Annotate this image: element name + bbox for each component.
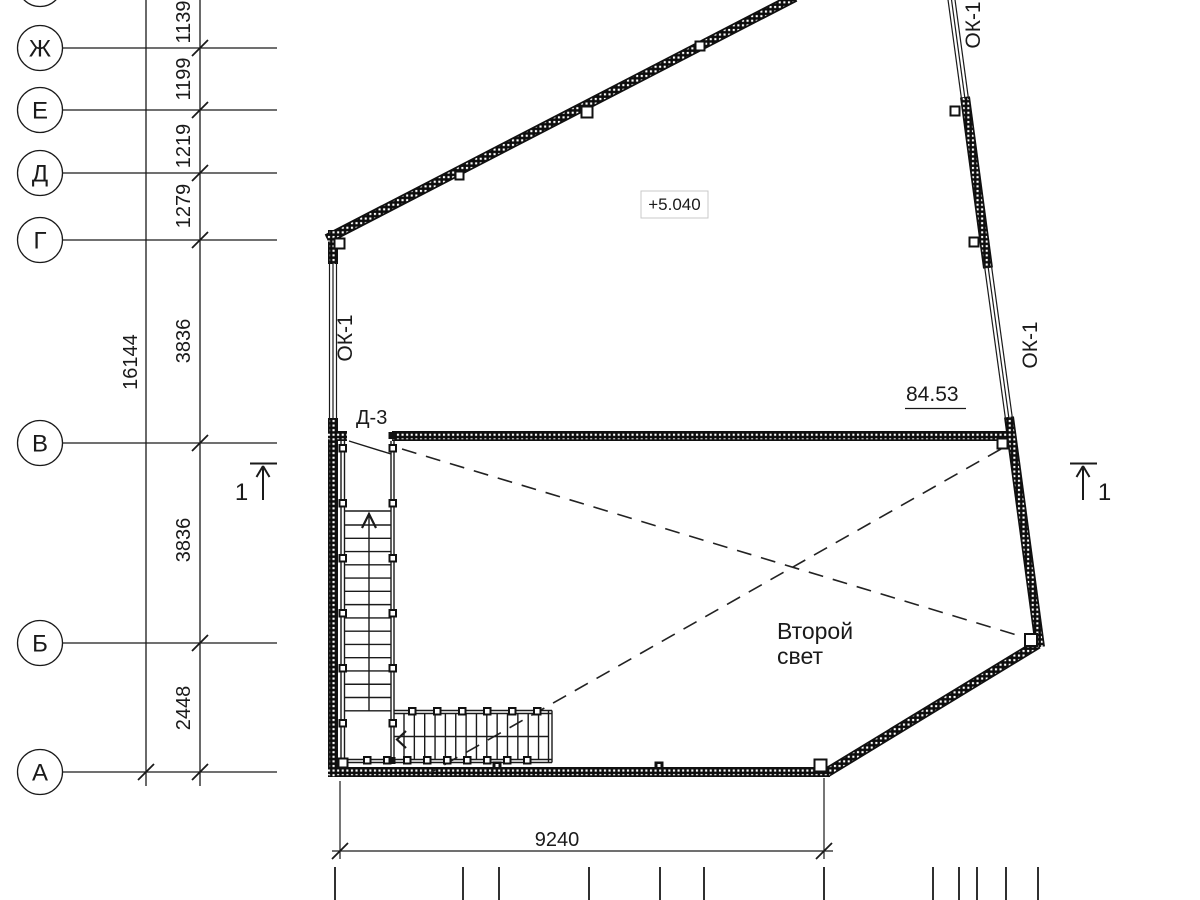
railing-post — [390, 720, 397, 727]
railing-post — [459, 708, 466, 715]
grid-circle-cut — [18, 0, 63, 7]
stair-treads — [345, 525, 539, 760]
void-label-line1: Второй — [777, 618, 853, 644]
grid-axis-letter: В — [32, 431, 48, 458]
window-label-right: ОК-1 — [1019, 321, 1042, 368]
railing-post — [340, 610, 347, 617]
bottom-dimension: 9240 — [332, 778, 833, 859]
railing-post — [340, 555, 347, 562]
section-number: 1 — [235, 479, 248, 506]
bottom-dim-value: 9240 — [535, 829, 580, 851]
railing-post — [390, 555, 397, 562]
railing-post — [390, 610, 397, 617]
column-markers — [335, 42, 1038, 772]
railing-post — [390, 665, 397, 672]
railing-post — [340, 720, 347, 727]
railing-post — [424, 757, 431, 764]
wall-segment — [1009, 417, 1040, 647]
railing-post — [390, 500, 397, 507]
grid-spacing-dim: 1199 — [173, 57, 195, 100]
wall-segment — [327, 0, 795, 239]
railing-post — [464, 757, 471, 764]
window-label-top-right: ОК-1 — [962, 1, 985, 48]
grid-axis-rows: ЖЕДГВБА — [18, 26, 278, 795]
floor-plan-canvas: ЖЕДГВБА 1139119912191279383638362448 161… — [0, 0, 1200, 900]
grid-axis-letter: Д — [32, 161, 48, 188]
window-label-left: ОК-1 — [334, 314, 357, 361]
grid-axis-letter: Е — [32, 98, 48, 125]
wall-segment — [826, 644, 1038, 773]
grid-spacing-dim: 1279 — [173, 184, 195, 229]
elevation-mark: +5.040 — [641, 191, 708, 218]
railing-post — [484, 757, 491, 764]
door-label: Д-3 — [356, 407, 387, 429]
section-number: 1 — [1098, 479, 1111, 506]
void-opening-cross — [402, 449, 1030, 774]
floor-plan-drawing: ЖЕДГВБА 1139119912191279383638362448 161… — [0, 0, 1200, 900]
grid-spacing-dim: 2448 — [173, 686, 195, 731]
grid-axis-letter: Г — [34, 228, 47, 255]
railing-post — [340, 500, 347, 507]
grid-axis-letter: А — [32, 760, 48, 787]
railing-post — [340, 445, 347, 452]
railing-post — [504, 757, 511, 764]
railing-post — [509, 708, 516, 715]
railing-post — [404, 757, 411, 764]
railing-post — [340, 665, 347, 672]
railing-post — [484, 708, 491, 715]
bottom-extension-ticks — [335, 867, 1038, 900]
railing-post — [444, 757, 451, 764]
grid-axis-letter: Б — [32, 631, 48, 658]
grid-spacing-dim: 3836 — [173, 518, 195, 563]
staircase — [338, 432, 552, 768]
area-value: 84.53 — [906, 383, 959, 406]
grid-spacing-dim: 1219 — [173, 124, 195, 169]
railing-post — [534, 708, 541, 715]
grid-axis-letter: Ж — [29, 36, 51, 63]
door-swing-line — [349, 441, 391, 454]
window-right-lower-ok1 — [985, 266, 1013, 419]
total-height-dim: 16144 — [120, 334, 142, 390]
railing-post — [434, 708, 441, 715]
section-mark-left: 1 — [235, 464, 277, 507]
area-mark: 84.53 — [905, 383, 966, 409]
railing-post — [524, 757, 531, 764]
section-mark-right: 1 — [1070, 464, 1111, 507]
elevation-value: +5.040 — [648, 195, 700, 214]
railing-post — [364, 757, 371, 764]
railing-post — [390, 445, 397, 452]
railing-post — [409, 708, 416, 715]
void-label-line2: свет — [777, 643, 823, 669]
grid-spacing-dim: 3836 — [173, 319, 195, 364]
grid-spacing-dim: 1139 — [173, 0, 195, 43]
